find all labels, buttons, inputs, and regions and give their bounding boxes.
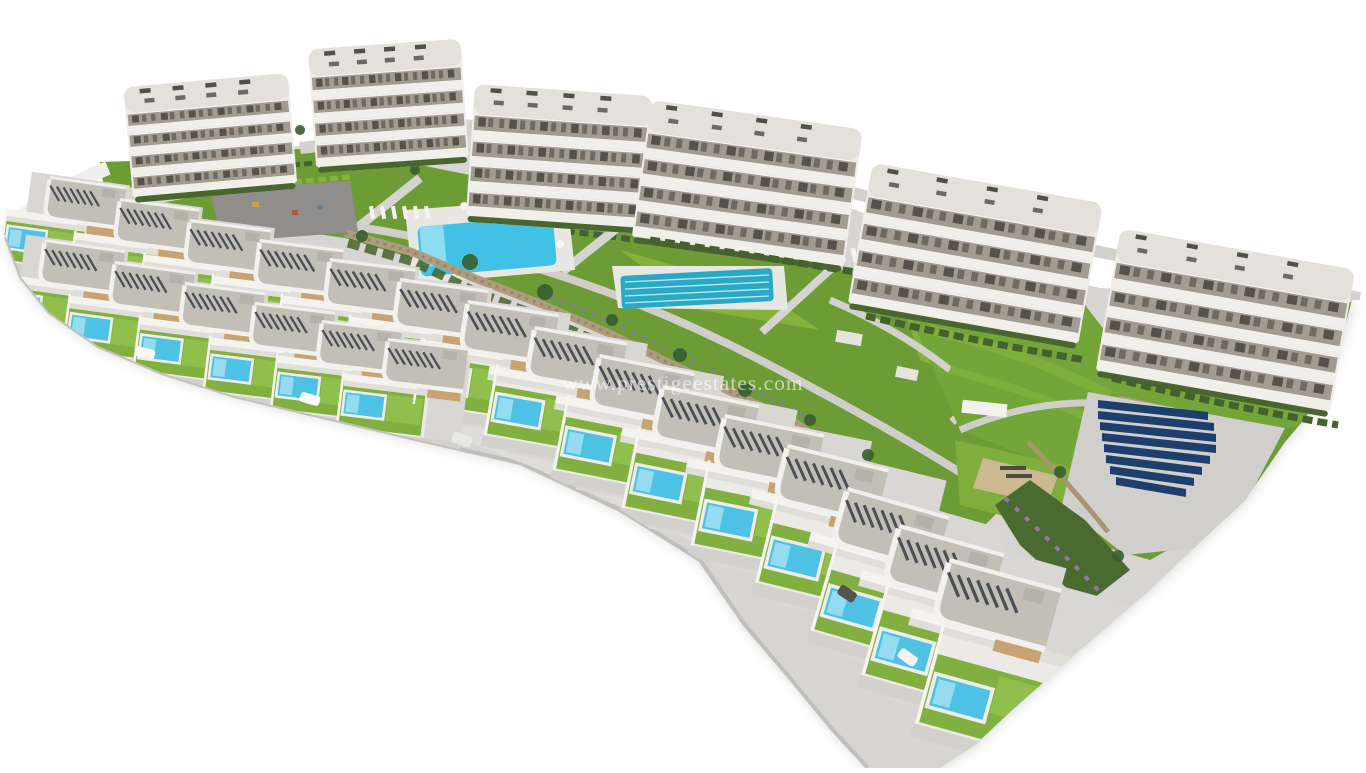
svg-text:www.prestigeestates.com: www.prestigeestates.com	[562, 371, 803, 395]
